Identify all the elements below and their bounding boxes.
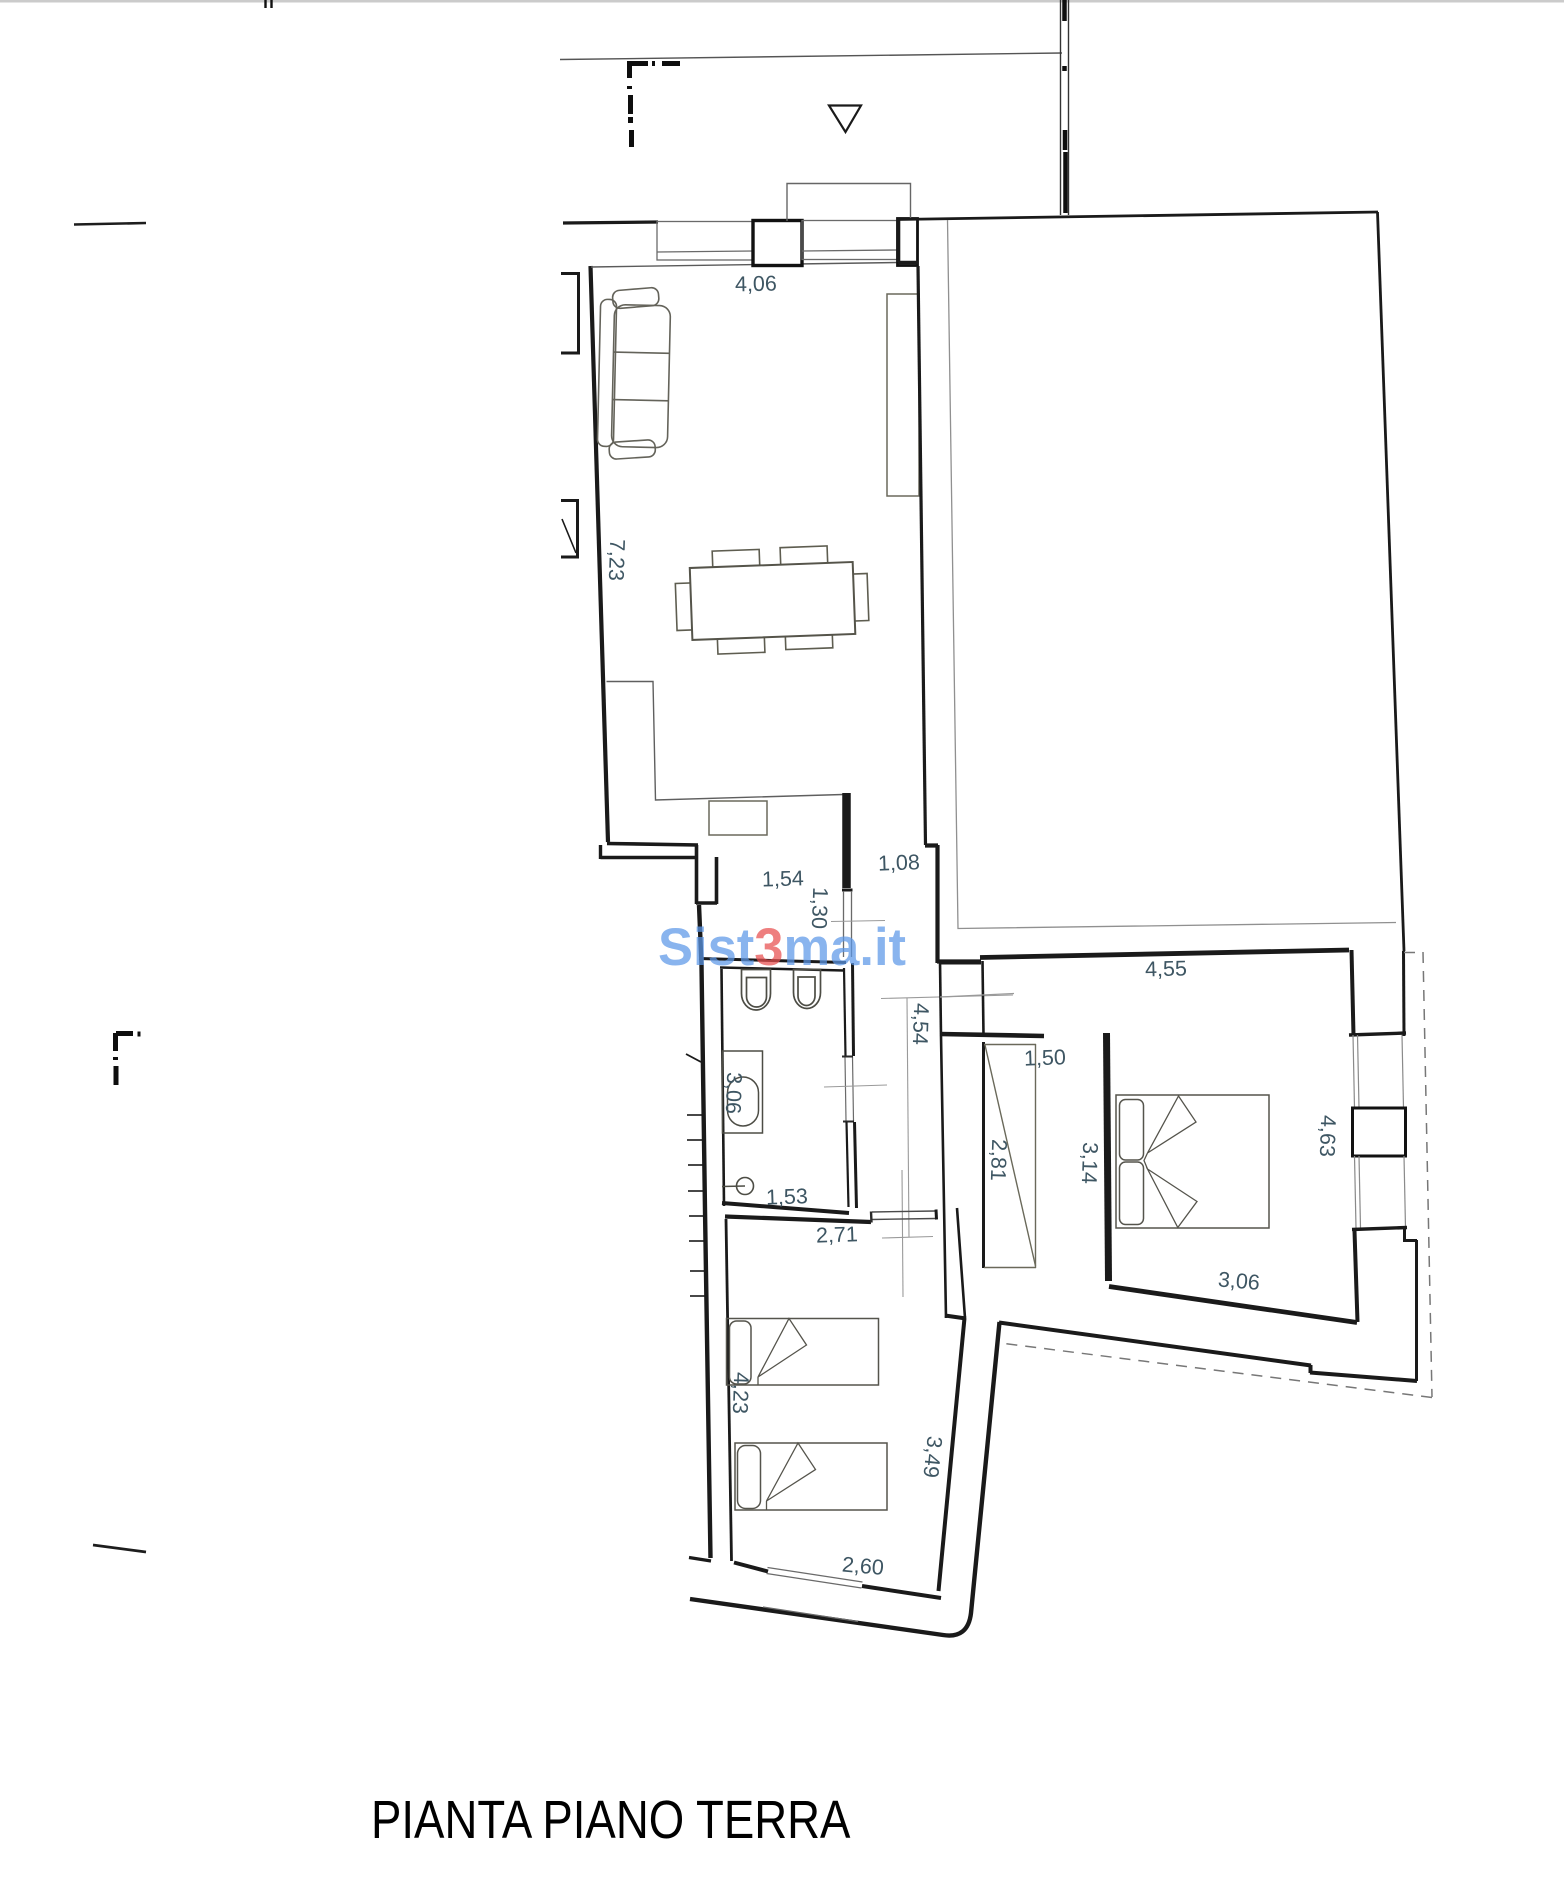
svg-text:4,55: 4,55	[1145, 956, 1188, 981]
svg-text:2,60: 2,60	[841, 1552, 885, 1580]
svg-text:4,63: 4,63	[1315, 1115, 1340, 1158]
svg-text:2,71: 2,71	[816, 1222, 859, 1247]
svg-text:1,50: 1,50	[1024, 1045, 1067, 1070]
svg-text:PIANTA PIANO TERRA: PIANTA PIANO TERRA	[371, 1790, 851, 1850]
svg-text:2,81: 2,81	[986, 1139, 1011, 1182]
svg-text:3,06: 3,06	[721, 1072, 746, 1115]
svg-text:1,54: 1,54	[762, 866, 805, 891]
svg-text:1,53: 1,53	[766, 1184, 809, 1209]
svg-text:Sist3ma.it: Sist3ma.it	[658, 918, 906, 977]
svg-text:4,23: 4,23	[728, 1372, 753, 1415]
svg-text:3,49: 3,49	[918, 1435, 946, 1479]
svg-text:1,08: 1,08	[878, 850, 921, 875]
svg-text:3,06: 3,06	[1217, 1267, 1261, 1295]
svg-text:4,54: 4,54	[908, 1003, 933, 1046]
svg-text:7,23: 7,23	[604, 539, 629, 582]
svg-text:3,14: 3,14	[1077, 1142, 1102, 1185]
svg-text:4,06: 4,06	[735, 272, 777, 297]
